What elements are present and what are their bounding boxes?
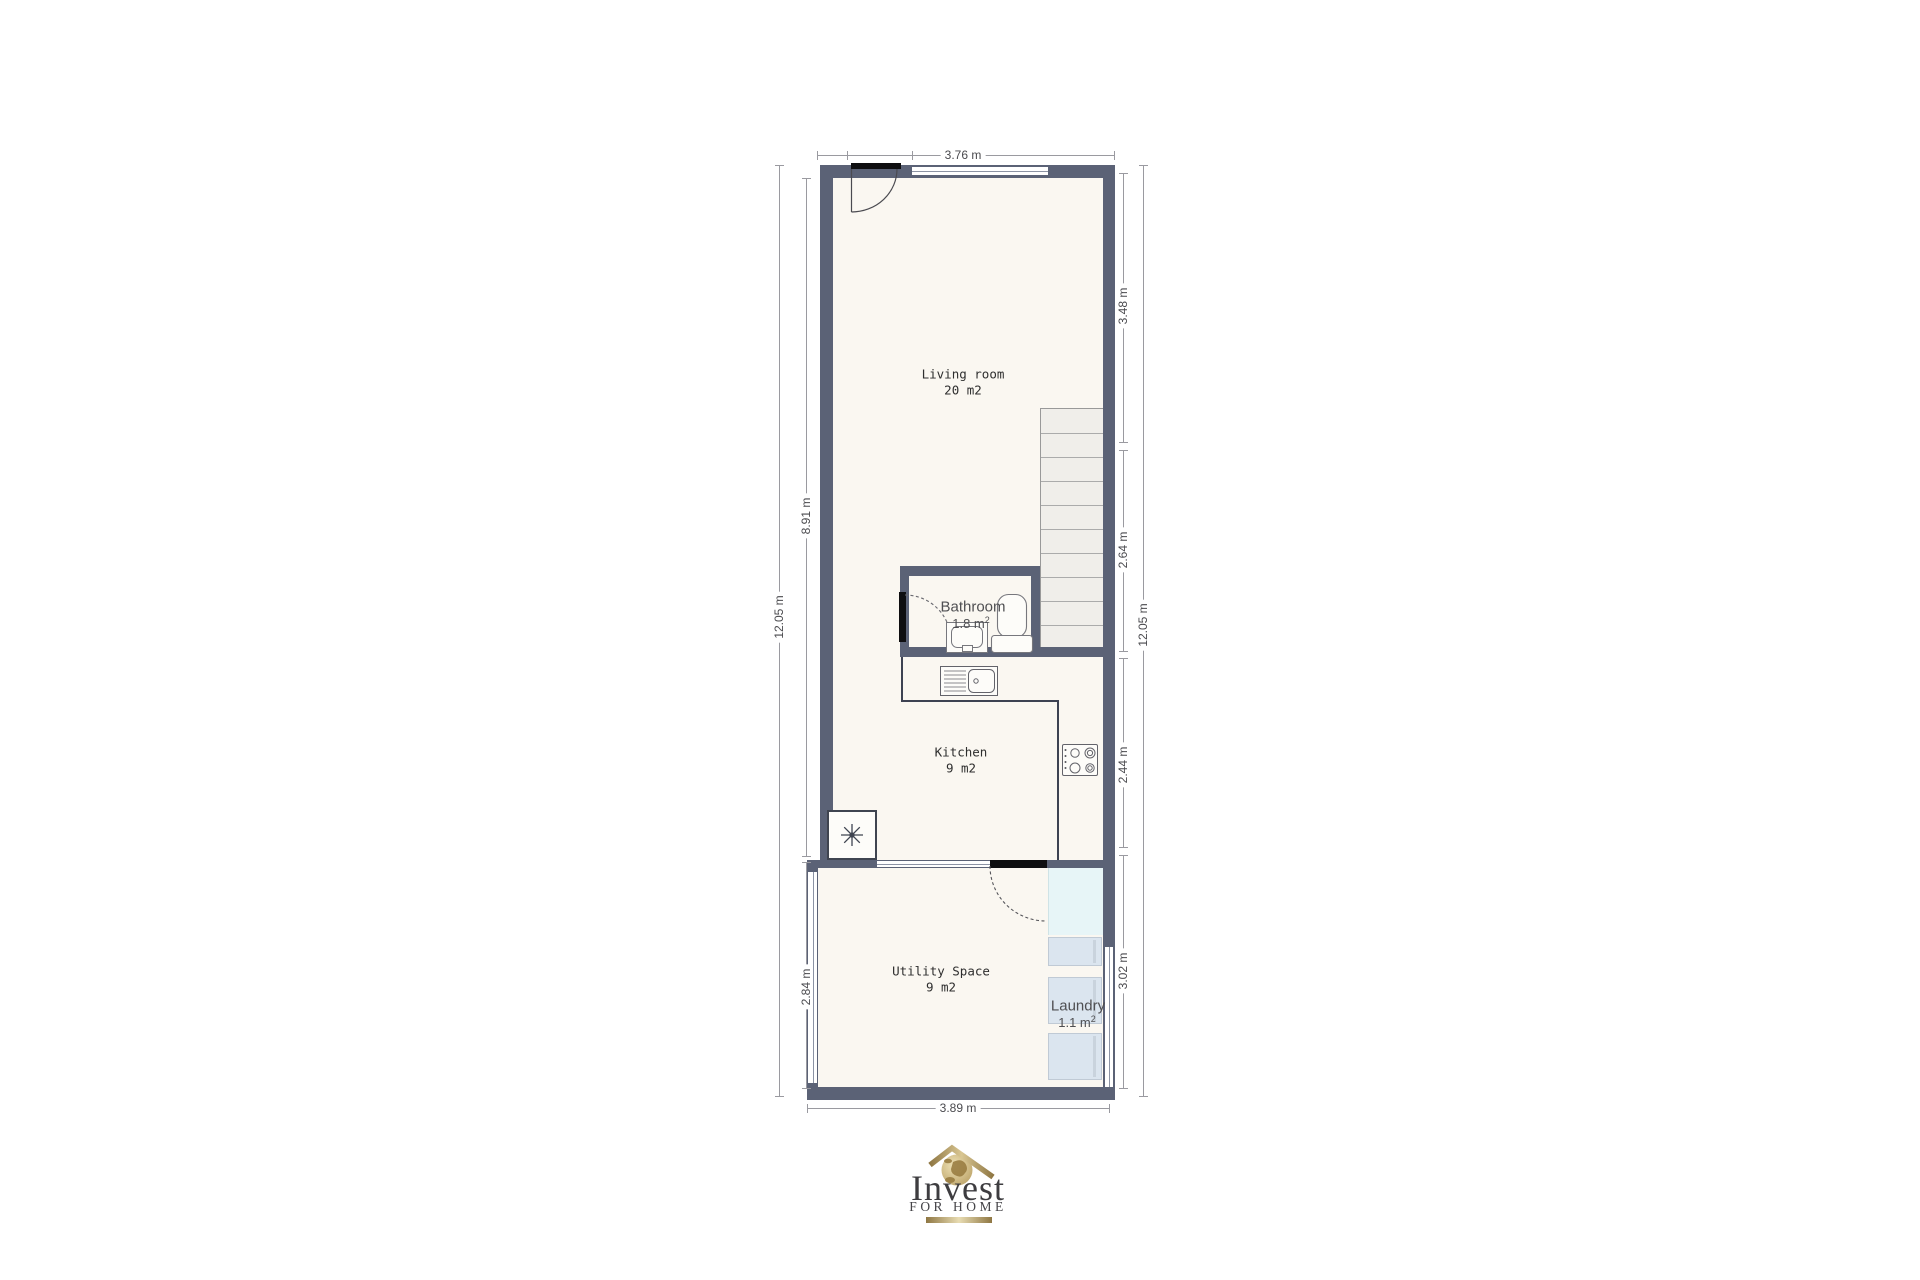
wall-bottom <box>807 1087 1115 1100</box>
dim-right-outer: 12.05 m <box>1136 599 1150 650</box>
dim-tick <box>802 862 811 863</box>
bathroom-door <box>899 592 906 642</box>
stair-tread <box>1041 457 1103 458</box>
logo-tagline: FOR HOME <box>909 1199 1006 1215</box>
dim-tick <box>1109 1104 1110 1113</box>
floor-plan-canvas: Living room 20 m2 Bathroom 1.8 m2 Kitche… <box>0 0 1920 1280</box>
dim-bottom: 3.89 m <box>936 1101 981 1115</box>
stair-tread <box>1041 481 1103 482</box>
dim-tick <box>1139 165 1148 166</box>
window-top <box>912 166 1048 176</box>
entry-door <box>851 163 901 169</box>
window-laundry-right <box>1104 947 1114 1087</box>
counter-edge <box>1057 700 1059 860</box>
stair-tread <box>1041 601 1103 602</box>
dim-right-stairs: 2.64 m <box>1116 528 1130 573</box>
dim-tick <box>1119 173 1128 174</box>
dim-tick <box>1139 1096 1148 1097</box>
living-room-label: Living room <box>922 367 1005 382</box>
kitchen-label: Kitchen <box>935 745 988 760</box>
stair-tread <box>1041 505 1103 506</box>
dim-tick <box>1119 847 1128 848</box>
bathroom-label: Bathroom <box>940 599 1005 616</box>
dim-tick <box>912 151 913 160</box>
living-room-area: 20 m2 <box>944 383 982 398</box>
stair-tread <box>1041 577 1103 578</box>
counter-edge <box>901 700 1059 702</box>
dim-tick <box>775 1096 784 1097</box>
stair-tread <box>1041 625 1103 626</box>
laundry-zone <box>1048 868 1103 935</box>
dim-tick <box>1119 658 1128 659</box>
dim-tick <box>1119 855 1128 856</box>
boiler-box <box>827 810 877 860</box>
stair-tread <box>1041 553 1103 554</box>
dim-left-outer: 12.05 m <box>772 591 786 642</box>
counter-edge <box>901 657 903 702</box>
dim-right-kitchen: 2.44 m <box>1116 743 1130 788</box>
dim-right-utility: 3.02 m <box>1116 949 1130 994</box>
bathroom-wall-bottom <box>900 647 1103 657</box>
dim-tick <box>817 151 818 160</box>
dim-tick <box>1119 442 1128 443</box>
dim-tick <box>1119 651 1128 652</box>
dim-tick <box>775 165 784 166</box>
utility-label: Utility Space <box>892 964 990 979</box>
dim-top: 3.76 m <box>941 148 986 162</box>
dim-left-upper: 8.91 m <box>799 494 813 539</box>
dim-tick <box>847 151 848 160</box>
dim-tick <box>802 178 811 179</box>
dim-left-lower: 2.84 m <box>799 965 813 1010</box>
utility-door <box>990 860 1047 868</box>
bathroom-area: 1.8 m2 <box>952 615 990 631</box>
dim-tick <box>1119 1088 1128 1089</box>
dim-tick <box>807 1104 808 1113</box>
dim-tick <box>1114 151 1115 160</box>
stair-tread <box>1041 529 1103 530</box>
dim-tick <box>1119 450 1128 451</box>
bathroom-wall-top <box>900 566 1040 576</box>
washing-machine <box>1048 1033 1102 1080</box>
window-mid <box>877 860 990 868</box>
bathroom-wall-right <box>1031 576 1040 656</box>
stairs <box>1040 408 1103 647</box>
laundry-area: 1.1 m2 <box>1058 1014 1096 1030</box>
wall-left-upper <box>820 165 833 867</box>
dim-right-living: 3.48 m <box>1116 284 1130 329</box>
washing-machine <box>1048 937 1102 966</box>
laundry-label: Laundry <box>1051 998 1105 1015</box>
stair-tread <box>1041 433 1103 434</box>
utility-area: 9 m2 <box>926 980 956 995</box>
dim-tick <box>802 856 811 857</box>
dim-tick <box>802 1088 811 1089</box>
kitchen-area: 9 m2 <box>946 761 976 776</box>
logo-gold-bar <box>926 1217 992 1223</box>
